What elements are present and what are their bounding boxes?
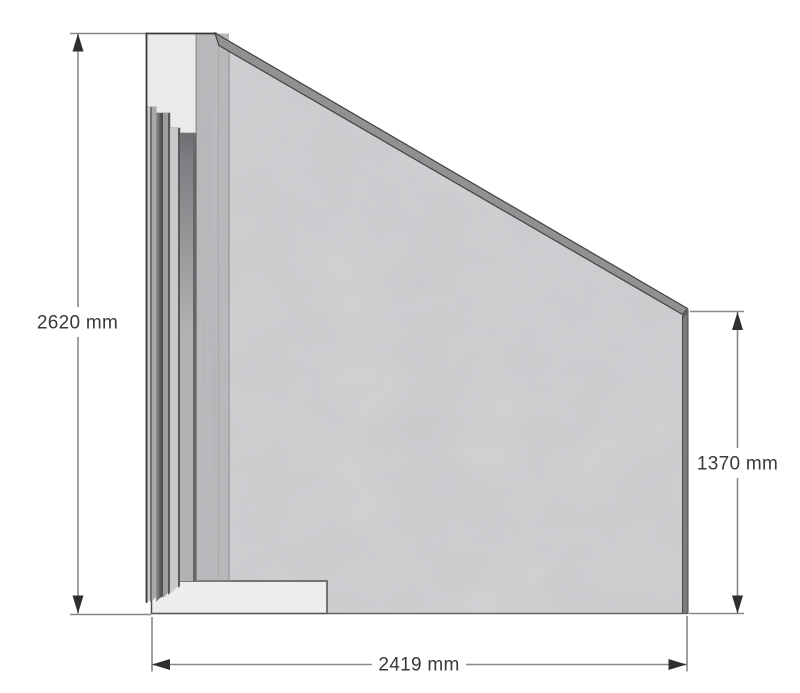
dim-arrow-left-icon bbox=[152, 659, 170, 670]
groove-strip bbox=[168, 113, 170, 595]
groove-strip bbox=[178, 128, 180, 588]
wall-element-side-view: 2620 mm 1370 mm 2419 mm bbox=[0, 0, 800, 693]
dim-label-right-height: 1370 mm bbox=[697, 454, 778, 475]
panel-right-edge-band bbox=[683, 311, 689, 614]
groove-strip bbox=[170, 128, 178, 594]
cap-shadow bbox=[180, 133, 196, 159]
groove-strip bbox=[163, 113, 168, 598]
dim-label-bottom-width: 2419 mm bbox=[378, 655, 459, 676]
groove-strip bbox=[161, 113, 163, 598]
groove-strip bbox=[147, 107, 150, 603]
technical-drawing-canvas: 2620 mm 1370 mm 2419 mm bbox=[0, 0, 800, 693]
dim-arrow-right-icon bbox=[669, 659, 687, 670]
dim-arrow-up-icon bbox=[73, 34, 84, 52]
post-groove-strips bbox=[147, 107, 196, 603]
groove-strip bbox=[193, 133, 196, 581]
dim-label-left-height: 2620 mm bbox=[37, 313, 118, 334]
groove-strip bbox=[150, 107, 152, 602]
dim-arrow-down-icon bbox=[73, 596, 84, 614]
groove-strip bbox=[156, 113, 161, 602]
barrier-element bbox=[147, 30, 693, 620]
groove-strip bbox=[152, 107, 156, 601]
dim-arrow-up-icon bbox=[732, 312, 743, 330]
post-face-texture bbox=[196, 34, 229, 582]
dim-arrow-down-icon bbox=[732, 596, 743, 614]
groove-strip bbox=[180, 133, 193, 581]
